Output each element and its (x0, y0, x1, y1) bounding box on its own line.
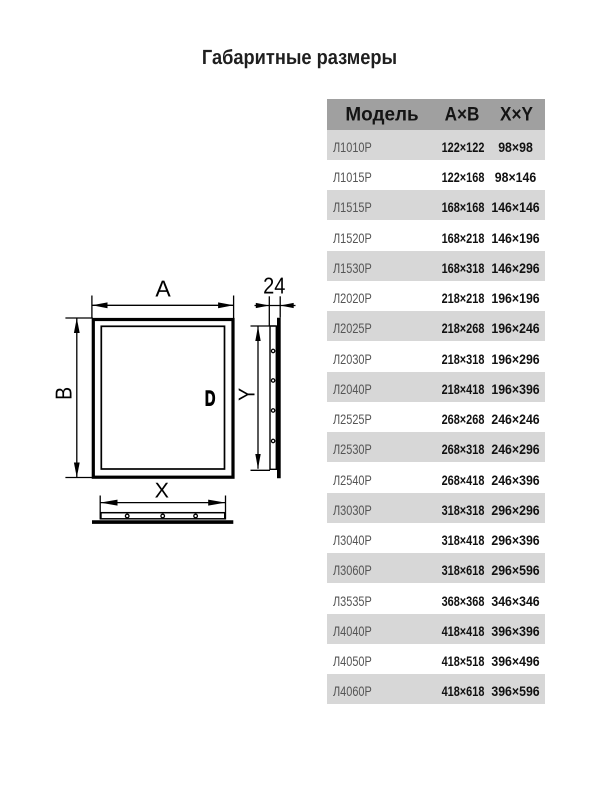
svg-text:Y: Y (234, 388, 260, 401)
svg-text:Габаритные размеры: Габаритные размеры (202, 46, 397, 69)
svg-text:24: 24 (263, 272, 285, 298)
svg-text:D: D (205, 387, 216, 411)
svg-text:A: A (155, 276, 171, 302)
svg-text:B: B (51, 387, 77, 400)
svg-text:X: X (155, 479, 169, 503)
